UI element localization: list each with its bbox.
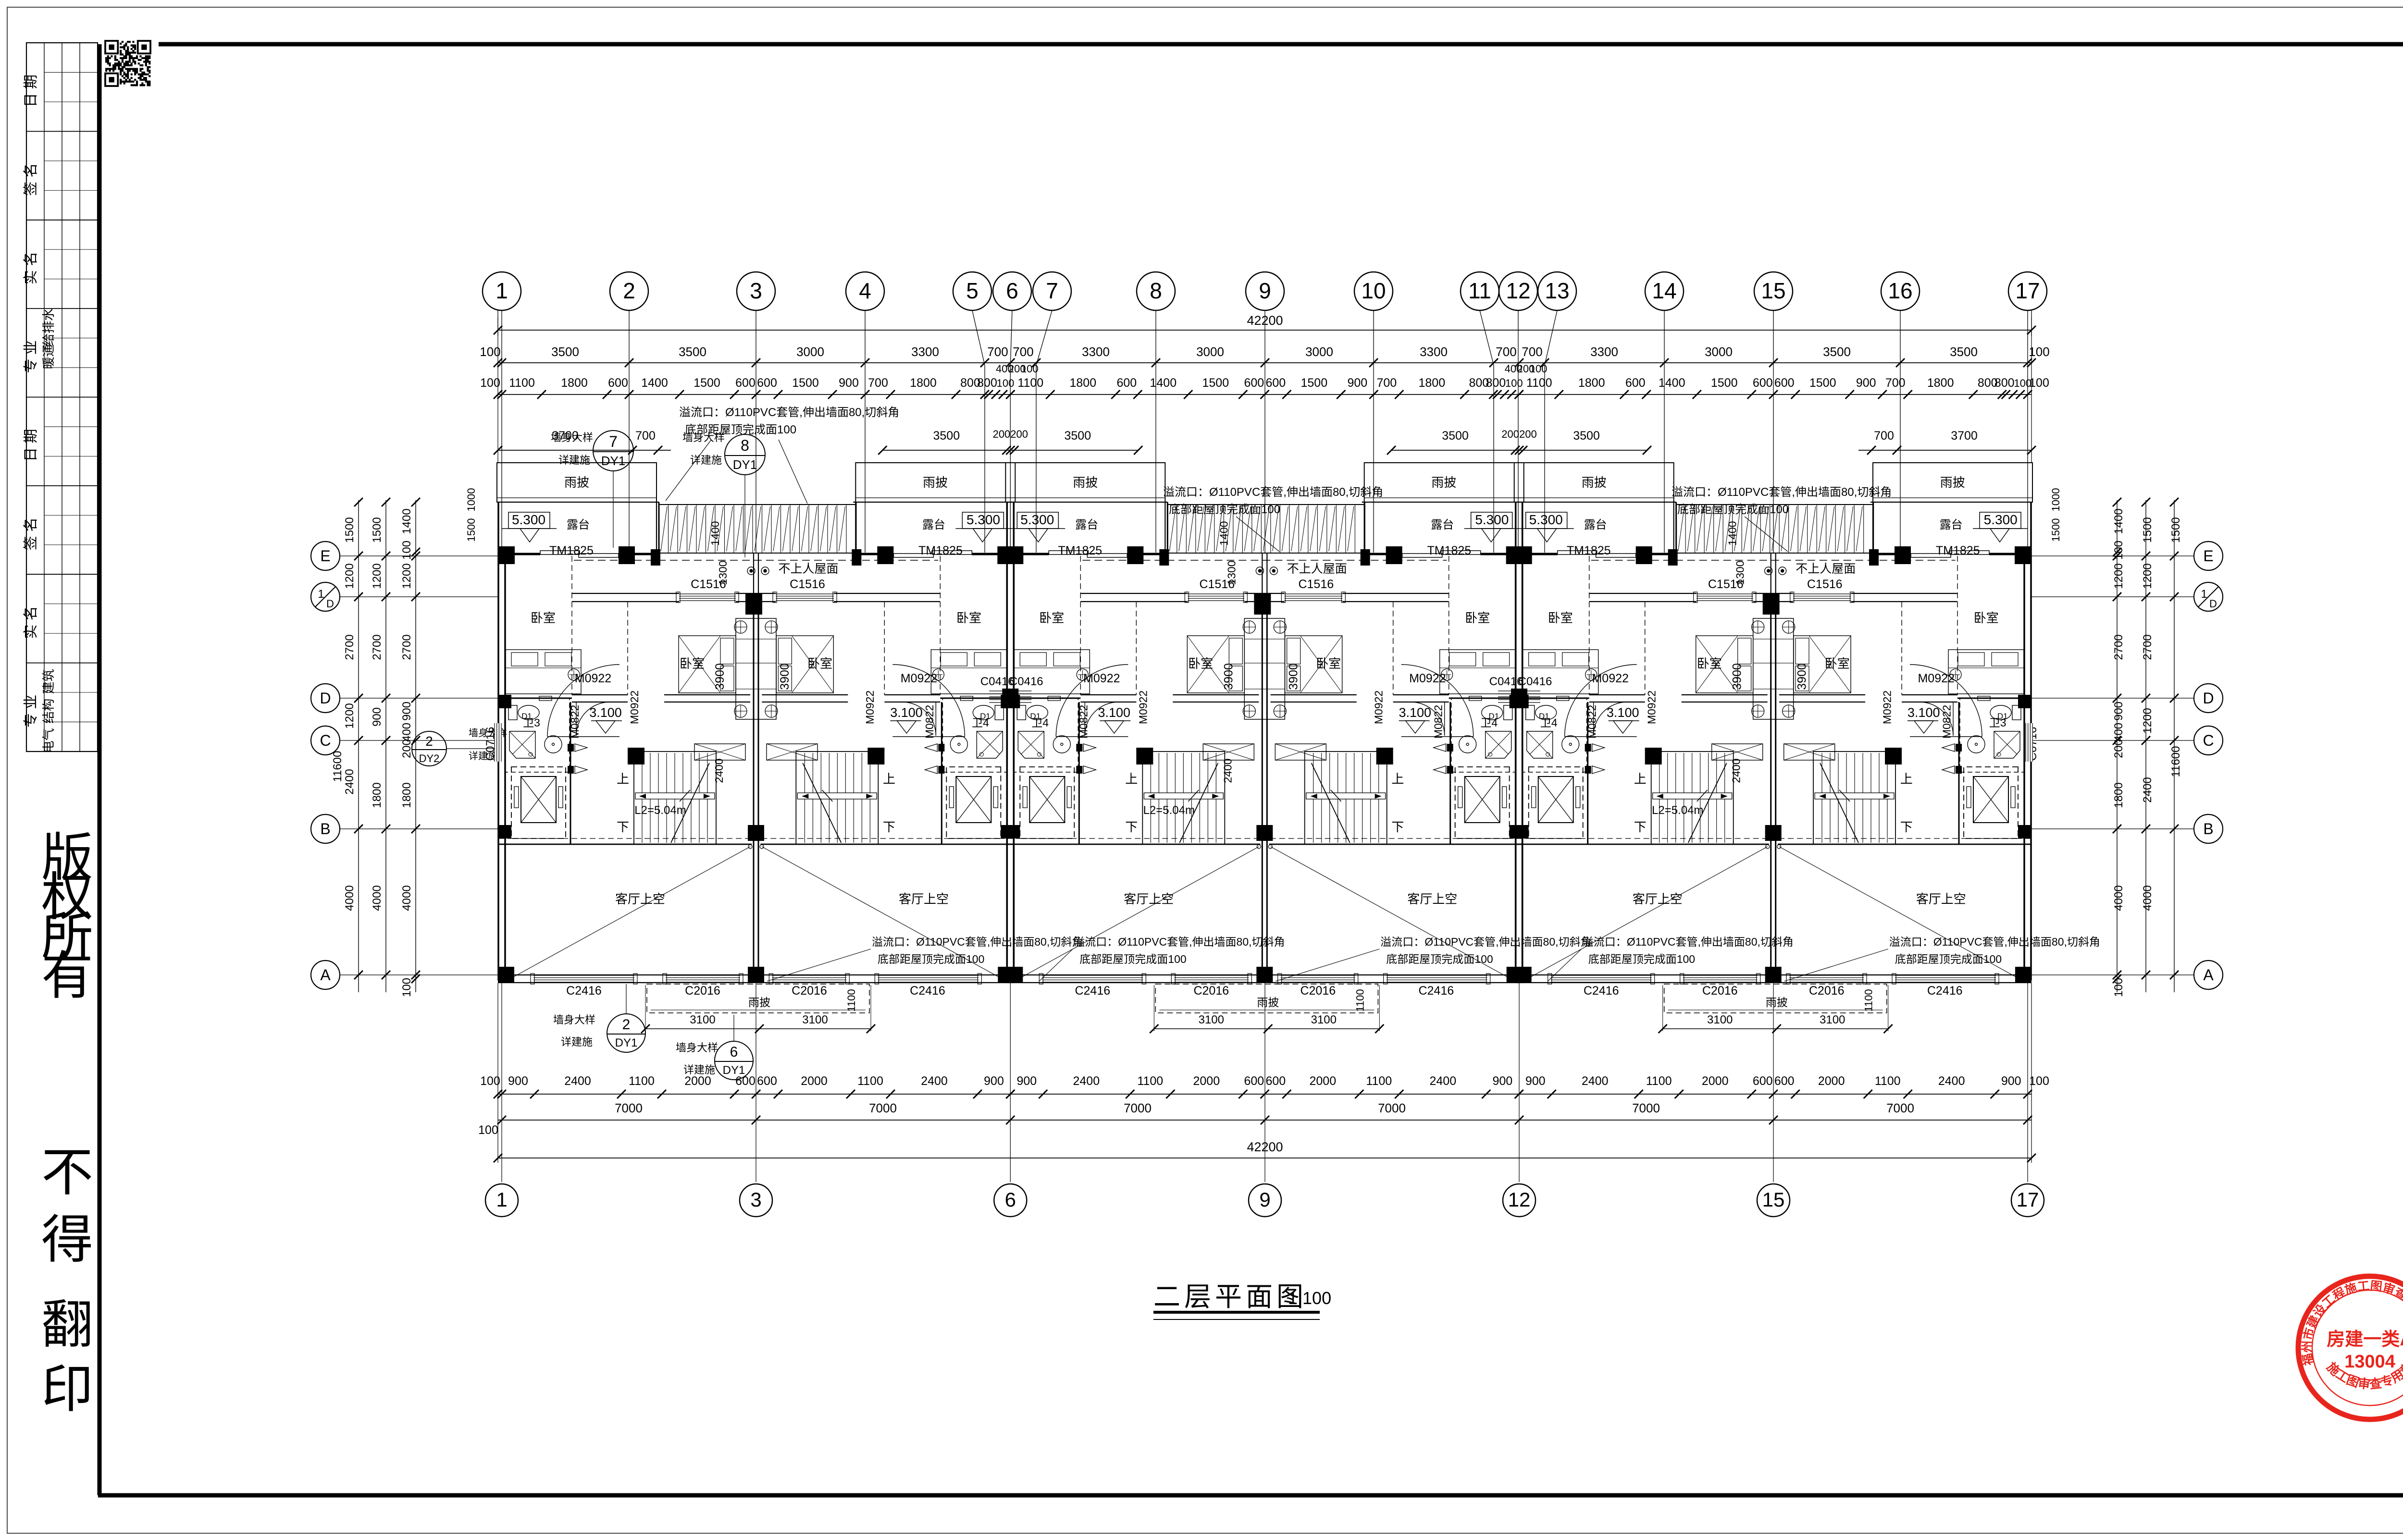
svg-text:M0922: M0922 bbox=[1083, 672, 1120, 685]
svg-text:3500: 3500 bbox=[1950, 345, 1978, 359]
svg-text:2700: 2700 bbox=[371, 634, 384, 660]
svg-text:有: 有 bbox=[41, 947, 93, 1005]
svg-text:900: 900 bbox=[508, 1074, 528, 1088]
svg-text:200200: 200200 bbox=[1501, 428, 1536, 440]
svg-text:暖通: 暖通 bbox=[41, 344, 56, 369]
svg-text:B: B bbox=[2203, 820, 2213, 838]
svg-text:DY1: DY1 bbox=[601, 454, 626, 468]
svg-text:15: 15 bbox=[1762, 1188, 1785, 1211]
svg-text:2: 2 bbox=[425, 734, 433, 749]
svg-text:900: 900 bbox=[2112, 702, 2125, 721]
svg-text:M0922: M0922 bbox=[628, 690, 641, 724]
svg-text:二层平面图: 二层平面图 bbox=[1153, 1281, 1307, 1312]
svg-text:11600: 11600 bbox=[2169, 746, 2182, 777]
svg-text:7000: 7000 bbox=[1124, 1101, 1152, 1115]
svg-text:不上人屋面: 不上人屋面 bbox=[1796, 562, 1856, 576]
svg-text:1500: 1500 bbox=[2050, 518, 2062, 542]
svg-text:100: 100 bbox=[1530, 363, 1548, 375]
svg-text:5.300: 5.300 bbox=[1475, 512, 1509, 527]
svg-text:得: 得 bbox=[41, 1210, 93, 1269]
svg-text:2700: 2700 bbox=[400, 634, 413, 660]
svg-text:1100: 1100 bbox=[1354, 989, 1366, 1011]
svg-text:2400: 2400 bbox=[1429, 1074, 1456, 1088]
svg-text:200: 200 bbox=[2112, 739, 2125, 758]
svg-text:13: 13 bbox=[1545, 278, 1569, 303]
svg-text:C2416: C2416 bbox=[910, 984, 945, 998]
svg-text:3.100: 3.100 bbox=[1098, 705, 1131, 720]
svg-text:1800: 1800 bbox=[371, 782, 384, 808]
svg-text:L2=5.04m: L2=5.04m bbox=[1652, 804, 1703, 817]
svg-text:3.100: 3.100 bbox=[1908, 705, 1940, 720]
svg-text:7: 7 bbox=[1046, 278, 1058, 303]
svg-text:700: 700 bbox=[1874, 429, 1894, 443]
svg-text:底部距屋顶完成面100: 底部距屋顶完成面100 bbox=[1895, 953, 2002, 965]
svg-text:600: 600 bbox=[1753, 376, 1773, 390]
svg-text:100: 100 bbox=[2029, 376, 2049, 390]
svg-text:D1: D1 bbox=[1997, 712, 2008, 721]
svg-text:M0922: M0922 bbox=[901, 672, 937, 685]
svg-text:100: 100 bbox=[1505, 377, 1523, 389]
svg-text:100: 100 bbox=[480, 1074, 500, 1088]
svg-text:700: 700 bbox=[1522, 345, 1542, 359]
svg-text:翻: 翻 bbox=[41, 1295, 93, 1354]
svg-text:M0922: M0922 bbox=[1592, 672, 1628, 685]
svg-text:E: E bbox=[320, 547, 330, 565]
svg-text:D1: D1 bbox=[521, 712, 532, 721]
svg-text:1500: 1500 bbox=[1711, 376, 1738, 390]
svg-text:900: 900 bbox=[1347, 376, 1367, 390]
svg-text:溢流口：Ø110PVC套管,伸出墙面80,切斜角: 溢流口：Ø110PVC套管,伸出墙面80,切斜角 bbox=[1380, 936, 1591, 948]
svg-text:600: 600 bbox=[1753, 1074, 1773, 1088]
svg-text:3300: 3300 bbox=[1082, 345, 1110, 359]
svg-text:客厅上空: 客厅上空 bbox=[1124, 892, 1174, 906]
svg-text:卧室: 卧室 bbox=[1316, 656, 1341, 671]
svg-text:A: A bbox=[2203, 966, 2214, 984]
svg-text:雨披: 雨披 bbox=[1257, 996, 1279, 1009]
svg-text:9: 9 bbox=[1259, 1188, 1270, 1211]
svg-text:1300: 1300 bbox=[1734, 560, 1747, 585]
svg-text:200200: 200200 bbox=[993, 428, 1028, 440]
svg-text:实 名: 实 名 bbox=[23, 252, 39, 284]
svg-text:1800: 1800 bbox=[1578, 376, 1605, 390]
svg-text:卧室: 卧室 bbox=[680, 656, 705, 671]
svg-text:1800: 1800 bbox=[910, 376, 937, 390]
svg-text:7000: 7000 bbox=[615, 1101, 643, 1115]
svg-text:M0922: M0922 bbox=[1646, 690, 1658, 724]
svg-text:900: 900 bbox=[2001, 1074, 2021, 1088]
svg-text:1200: 1200 bbox=[400, 563, 413, 589]
svg-text:12: 12 bbox=[1506, 278, 1530, 303]
svg-text:M0822: M0822 bbox=[1432, 705, 1444, 739]
svg-text:2000: 2000 bbox=[1818, 1074, 1845, 1088]
svg-text:1200: 1200 bbox=[2141, 708, 2154, 733]
svg-text:900: 900 bbox=[371, 707, 384, 727]
svg-text:C0416: C0416 bbox=[1009, 675, 1043, 688]
svg-text:3100: 3100 bbox=[802, 1013, 828, 1026]
svg-text:不: 不 bbox=[41, 1143, 93, 1201]
svg-text:专 业: 专 业 bbox=[23, 340, 39, 373]
svg-text:2400: 2400 bbox=[713, 758, 725, 783]
svg-text:3100: 3100 bbox=[1311, 1013, 1337, 1026]
svg-text:露台: 露台 bbox=[567, 518, 590, 531]
svg-text:8: 8 bbox=[1150, 278, 1162, 303]
svg-text:13004: 13004 bbox=[2344, 1352, 2395, 1372]
svg-text:1500: 1500 bbox=[1809, 376, 1836, 390]
svg-text:1200: 1200 bbox=[343, 563, 356, 589]
svg-text:3100: 3100 bbox=[1820, 1013, 1845, 1026]
svg-text:不上人屋面: 不上人屋面 bbox=[1287, 562, 1347, 576]
svg-text:600: 600 bbox=[1265, 376, 1286, 390]
svg-text:600: 600 bbox=[1774, 1074, 1795, 1088]
svg-text:3: 3 bbox=[750, 278, 762, 303]
svg-text:溢流口：Ø110PVC套管,伸出墙面80,切斜角: 溢流口：Ø110PVC套管,伸出墙面80,切斜角 bbox=[1583, 936, 1794, 948]
svg-text:2: 2 bbox=[622, 1017, 631, 1033]
svg-text:露台: 露台 bbox=[1075, 518, 1098, 531]
svg-text:TM1825: TM1825 bbox=[1936, 544, 1980, 557]
svg-text:1100: 1100 bbox=[1017, 376, 1043, 390]
svg-text:1800: 1800 bbox=[1418, 376, 1445, 390]
svg-text:5.300: 5.300 bbox=[1984, 512, 2018, 527]
svg-text:1: 1 bbox=[495, 278, 508, 303]
svg-text:C2016: C2016 bbox=[792, 984, 827, 998]
svg-text:10: 10 bbox=[1361, 278, 1386, 303]
svg-text:卧室: 卧室 bbox=[1697, 656, 1722, 671]
svg-text:2400: 2400 bbox=[1938, 1074, 1965, 1088]
svg-text:下: 下 bbox=[1391, 820, 1404, 834]
svg-text:详建施: 详建施 bbox=[690, 454, 722, 466]
svg-text:TM1825: TM1825 bbox=[918, 544, 963, 557]
svg-text:2000: 2000 bbox=[1309, 1074, 1336, 1088]
svg-text:3900: 3900 bbox=[1287, 663, 1300, 690]
svg-text:5: 5 bbox=[966, 278, 979, 303]
svg-text:16: 16 bbox=[1888, 278, 1912, 303]
svg-text:1800: 1800 bbox=[1069, 376, 1096, 390]
svg-text:600: 600 bbox=[1774, 376, 1795, 390]
svg-text:3500: 3500 bbox=[551, 345, 579, 359]
svg-text:C2416: C2416 bbox=[566, 984, 602, 998]
svg-text:印: 印 bbox=[41, 1360, 93, 1418]
svg-text:15: 15 bbox=[1761, 278, 1785, 303]
svg-text:D1: D1 bbox=[980, 712, 991, 721]
svg-text:3700: 3700 bbox=[1951, 429, 1978, 443]
svg-text:底部距屋顶完成面100: 底部距屋顶完成面100 bbox=[1169, 503, 1280, 516]
svg-text:900: 900 bbox=[839, 376, 859, 390]
svg-text:1400: 1400 bbox=[400, 508, 413, 534]
svg-text:1400: 1400 bbox=[1726, 521, 1739, 545]
svg-text:露台: 露台 bbox=[1940, 518, 1963, 531]
svg-text:墙身大样: 墙身大样 bbox=[676, 1042, 718, 1054]
svg-text:2400: 2400 bbox=[1582, 1074, 1609, 1088]
svg-text:11: 11 bbox=[1468, 278, 1491, 303]
svg-text:1500: 1500 bbox=[465, 518, 477, 542]
svg-text:C: C bbox=[320, 732, 331, 749]
svg-text:C2416: C2416 bbox=[1075, 984, 1110, 998]
svg-text:C2016: C2016 bbox=[1193, 984, 1229, 998]
svg-text:雨披: 雨披 bbox=[923, 475, 948, 490]
svg-text:D1: D1 bbox=[1030, 712, 1040, 721]
svg-text:800: 800 bbox=[1994, 376, 2015, 390]
svg-text:DY1: DY1 bbox=[615, 1036, 638, 1049]
svg-text:C2416: C2416 bbox=[1584, 984, 1619, 998]
svg-text:7000: 7000 bbox=[1632, 1101, 1660, 1115]
svg-text:4000: 4000 bbox=[2112, 885, 2125, 911]
svg-text:M0922: M0922 bbox=[1409, 672, 1446, 685]
svg-text:1100: 1100 bbox=[629, 1074, 655, 1088]
svg-text:900: 900 bbox=[1856, 376, 1876, 390]
svg-text:600: 600 bbox=[757, 1074, 777, 1088]
svg-text:100: 100 bbox=[2029, 1074, 2049, 1088]
svg-text:2400: 2400 bbox=[2141, 777, 2154, 802]
svg-text:600: 600 bbox=[757, 376, 777, 390]
svg-text:客厅上空: 客厅上空 bbox=[1633, 892, 1683, 906]
svg-text:上: 上 bbox=[883, 772, 895, 786]
svg-text:9: 9 bbox=[1259, 278, 1271, 303]
svg-text:5.300: 5.300 bbox=[966, 512, 1000, 527]
svg-text:3500: 3500 bbox=[679, 345, 706, 359]
svg-text:溢流口：Ø110PVC套管,伸出墙面80,切斜角: 溢流口：Ø110PVC套管,伸出墙面80,切斜角 bbox=[1672, 486, 1892, 499]
svg-text:底部距屋顶完成面100: 底部距屋顶完成面100 bbox=[1588, 953, 1695, 965]
svg-text:7: 7 bbox=[609, 433, 618, 450]
svg-text:露台: 露台 bbox=[922, 518, 945, 531]
svg-text:100: 100 bbox=[400, 541, 413, 560]
svg-text:详建施: 详建施 bbox=[683, 1064, 715, 1076]
svg-text:3000: 3000 bbox=[1305, 345, 1333, 359]
svg-text:1100: 1100 bbox=[1526, 376, 1552, 390]
svg-text:1800: 1800 bbox=[2112, 782, 2125, 808]
svg-text:详建施: 详建施 bbox=[558, 454, 590, 466]
svg-text:TM1825: TM1825 bbox=[1058, 544, 1102, 557]
svg-text:签 名: 签 名 bbox=[23, 163, 39, 196]
svg-text:1000: 1000 bbox=[2050, 488, 2062, 512]
svg-text:M0822: M0822 bbox=[569, 705, 581, 739]
svg-text:5.300: 5.300 bbox=[512, 512, 545, 527]
svg-text:2000: 2000 bbox=[801, 1074, 828, 1088]
svg-text:600: 600 bbox=[1244, 1074, 1264, 1088]
svg-text:露台: 露台 bbox=[1584, 518, 1607, 531]
svg-text:墙身大样: 墙身大样 bbox=[551, 431, 593, 444]
svg-text:下: 下 bbox=[1125, 820, 1138, 834]
svg-text:D1: D1 bbox=[1488, 712, 1499, 721]
svg-text:2400: 2400 bbox=[921, 1074, 948, 1088]
svg-text:1500: 1500 bbox=[1202, 376, 1229, 390]
svg-text:17: 17 bbox=[2017, 1188, 2039, 1211]
svg-text:1100: 1100 bbox=[1875, 1074, 1901, 1088]
svg-text:E: E bbox=[2203, 547, 2213, 565]
svg-text:1500: 1500 bbox=[371, 517, 384, 542]
svg-text:3500: 3500 bbox=[1823, 345, 1851, 359]
svg-text:5.300: 5.300 bbox=[1020, 512, 1054, 527]
svg-text:3900: 3900 bbox=[713, 663, 727, 690]
svg-text:700: 700 bbox=[1376, 376, 1397, 390]
svg-text:3300: 3300 bbox=[911, 345, 939, 359]
svg-text:1300: 1300 bbox=[717, 560, 729, 585]
svg-text:1400: 1400 bbox=[2112, 508, 2125, 534]
svg-text:溢流口：Ø110PVC套管,伸出墙面80,切斜角: 溢流口：Ø110PVC套管,伸出墙面80,切斜角 bbox=[1889, 936, 2100, 948]
svg-text:7000: 7000 bbox=[1886, 1101, 1914, 1115]
svg-text:客厅上空: 客厅上空 bbox=[1407, 892, 1457, 906]
svg-text:1100: 1100 bbox=[509, 376, 535, 390]
svg-text:2000: 2000 bbox=[1193, 1074, 1220, 1088]
svg-text:1500: 1500 bbox=[2169, 517, 2182, 542]
svg-text:12: 12 bbox=[1508, 1188, 1531, 1211]
svg-text:1400: 1400 bbox=[1217, 521, 1230, 545]
svg-text:1500: 1500 bbox=[694, 376, 720, 390]
svg-text:700: 700 bbox=[1496, 345, 1516, 359]
svg-text:L2=5.04m: L2=5.04m bbox=[1143, 804, 1195, 817]
svg-text:2700: 2700 bbox=[343, 634, 356, 660]
svg-text:100: 100 bbox=[2112, 978, 2125, 997]
svg-text:42200: 42200 bbox=[1247, 313, 1283, 328]
svg-text:900: 900 bbox=[400, 702, 413, 721]
svg-text:M0922: M0922 bbox=[1137, 690, 1149, 724]
svg-text:给排水: 给排水 bbox=[41, 308, 56, 346]
svg-text:4000: 4000 bbox=[400, 885, 413, 911]
svg-text:不上人屋面: 不上人屋面 bbox=[778, 562, 838, 576]
svg-text:2000: 2000 bbox=[1702, 1074, 1729, 1088]
svg-text:6: 6 bbox=[1006, 278, 1018, 303]
svg-text:溢流口：Ø110PVC套管,伸出墙面80,切斜角: 溢流口：Ø110PVC套管,伸出墙面80,切斜角 bbox=[679, 406, 899, 419]
svg-text:6: 6 bbox=[1005, 1188, 1016, 1211]
svg-text:600: 600 bbox=[735, 376, 756, 390]
svg-text:17: 17 bbox=[2015, 278, 2040, 303]
svg-text:墙身大样: 墙身大样 bbox=[553, 1014, 595, 1026]
svg-text:M0922: M0922 bbox=[575, 672, 611, 685]
svg-text:100: 100 bbox=[1021, 363, 1039, 375]
svg-text:C: C bbox=[2203, 732, 2214, 749]
svg-text:D: D bbox=[2209, 598, 2217, 610]
svg-text:C0416: C0416 bbox=[1518, 675, 1552, 688]
svg-text:600: 600 bbox=[1625, 376, 1646, 390]
svg-text:签 名: 签 名 bbox=[23, 517, 39, 550]
svg-text:C2016: C2016 bbox=[1809, 984, 1845, 998]
svg-text:7000: 7000 bbox=[1378, 1101, 1406, 1115]
svg-text:4000: 4000 bbox=[371, 885, 384, 911]
svg-text:3900: 3900 bbox=[1222, 663, 1235, 690]
svg-text:3300: 3300 bbox=[1590, 345, 1618, 359]
svg-text:3000: 3000 bbox=[1705, 345, 1733, 359]
svg-text:3100: 3100 bbox=[1707, 1013, 1733, 1026]
svg-text:100: 100 bbox=[2029, 345, 2049, 359]
svg-text:1: 1 bbox=[2201, 588, 2207, 601]
svg-text:1500: 1500 bbox=[792, 376, 819, 390]
svg-text:C2016: C2016 bbox=[1300, 984, 1336, 998]
svg-text:房建一类A: 房建一类A bbox=[2327, 1330, 2403, 1350]
svg-text:DY1: DY1 bbox=[733, 457, 757, 472]
svg-text:上: 上 bbox=[1634, 772, 1647, 786]
svg-text:1800: 1800 bbox=[1927, 376, 1954, 390]
svg-text:6: 6 bbox=[730, 1044, 738, 1060]
svg-text:1100: 1100 bbox=[1137, 1074, 1163, 1088]
svg-text:雨披: 雨披 bbox=[1766, 996, 1788, 1009]
svg-text:C2016: C2016 bbox=[685, 984, 720, 998]
svg-text:800: 800 bbox=[977, 376, 997, 390]
svg-text:700: 700 bbox=[987, 345, 1008, 359]
svg-text:100: 100 bbox=[478, 1123, 498, 1137]
svg-text:1500: 1500 bbox=[1301, 376, 1327, 390]
svg-text:底部距屋顶完成面100: 底部距屋顶完成面100 bbox=[878, 953, 984, 965]
svg-text:卧室: 卧室 bbox=[1548, 611, 1573, 625]
svg-text:600: 600 bbox=[1244, 376, 1264, 390]
svg-text:3.100: 3.100 bbox=[890, 705, 923, 720]
svg-text:700: 700 bbox=[635, 429, 656, 443]
svg-text:下: 下 bbox=[1900, 820, 1913, 834]
svg-text:下: 下 bbox=[617, 820, 629, 834]
svg-text:14: 14 bbox=[1652, 278, 1676, 303]
svg-text:1:100: 1:100 bbox=[1288, 1288, 1331, 1308]
svg-text:2700: 2700 bbox=[2112, 634, 2125, 660]
svg-text:1500: 1500 bbox=[343, 517, 356, 542]
svg-text:C2016: C2016 bbox=[1702, 984, 1738, 998]
svg-text:2400: 2400 bbox=[564, 1074, 591, 1088]
svg-text:卧室: 卧室 bbox=[1974, 611, 1999, 625]
svg-text:日 期: 日 期 bbox=[23, 74, 39, 107]
svg-text:详建施: 详建施 bbox=[561, 1036, 593, 1048]
svg-text:C1516: C1516 bbox=[1298, 578, 1334, 591]
svg-text:溢流口：Ø110PVC套管,伸出墙面80,切斜角: 溢流口：Ø110PVC套管,伸出墙面80,切斜角 bbox=[1163, 486, 1383, 499]
svg-text:雨披: 雨披 bbox=[1073, 475, 1098, 490]
svg-text:1200: 1200 bbox=[343, 703, 356, 728]
svg-text:雨披: 雨披 bbox=[564, 475, 589, 490]
svg-text:3.100: 3.100 bbox=[1607, 705, 1639, 720]
svg-text:2700: 2700 bbox=[2141, 634, 2154, 660]
svg-text:7000: 7000 bbox=[869, 1101, 897, 1115]
svg-text:3000: 3000 bbox=[796, 345, 824, 359]
svg-text:2000: 2000 bbox=[684, 1074, 711, 1088]
svg-text:TM1825: TM1825 bbox=[1427, 544, 1471, 557]
svg-text:1: 1 bbox=[496, 1188, 507, 1211]
svg-text:底部距屋顶完成面100: 底部距屋顶完成面100 bbox=[1079, 953, 1186, 965]
svg-text:DY2: DY2 bbox=[419, 752, 440, 764]
svg-text:上: 上 bbox=[1391, 772, 1404, 786]
svg-text:3500: 3500 bbox=[933, 429, 960, 443]
svg-text:M0922: M0922 bbox=[1918, 672, 1954, 685]
svg-text:D1: D1 bbox=[1539, 712, 1549, 721]
svg-text:底部距屋顶完成面100: 底部距屋顶完成面100 bbox=[1386, 953, 1493, 965]
svg-text:M0822: M0822 bbox=[923, 705, 936, 739]
svg-text:1800: 1800 bbox=[400, 782, 413, 808]
svg-text:1300: 1300 bbox=[1225, 560, 1238, 585]
svg-text:3900: 3900 bbox=[778, 663, 792, 690]
svg-text:底部距屋顶完成面100: 底部距屋顶完成面100 bbox=[685, 423, 796, 436]
svg-text:客厅上空: 客厅上空 bbox=[1916, 892, 1966, 906]
svg-text:DY1: DY1 bbox=[723, 1064, 745, 1077]
svg-text:下: 下 bbox=[1634, 820, 1647, 834]
svg-text:100: 100 bbox=[480, 376, 500, 390]
svg-text:1400: 1400 bbox=[1150, 376, 1177, 390]
svg-text:700: 700 bbox=[868, 376, 888, 390]
svg-text:100: 100 bbox=[2112, 541, 2125, 560]
svg-text:3300: 3300 bbox=[1420, 345, 1448, 359]
svg-text:1100: 1100 bbox=[857, 1074, 883, 1088]
svg-text:C1516: C1516 bbox=[790, 578, 825, 591]
svg-text:2: 2 bbox=[623, 278, 635, 303]
svg-text:1200: 1200 bbox=[371, 563, 384, 589]
svg-text:上: 上 bbox=[1900, 772, 1913, 786]
svg-text:600: 600 bbox=[608, 376, 628, 390]
svg-text:900: 900 bbox=[984, 1074, 1004, 1088]
svg-text:2400: 2400 bbox=[1073, 1074, 1100, 1088]
svg-text:雨披: 雨披 bbox=[1940, 475, 1965, 490]
svg-text:A: A bbox=[320, 966, 331, 984]
svg-text:日 期: 日 期 bbox=[23, 429, 39, 462]
svg-text:1400: 1400 bbox=[709, 521, 721, 545]
svg-text:900: 900 bbox=[1016, 1074, 1037, 1088]
svg-text:M0822: M0822 bbox=[1586, 705, 1598, 739]
svg-text:1200: 1200 bbox=[2141, 563, 2154, 589]
svg-text:建筑: 建筑 bbox=[41, 669, 56, 694]
svg-text:900: 900 bbox=[1525, 1074, 1546, 1088]
svg-text:600: 600 bbox=[1116, 376, 1137, 390]
